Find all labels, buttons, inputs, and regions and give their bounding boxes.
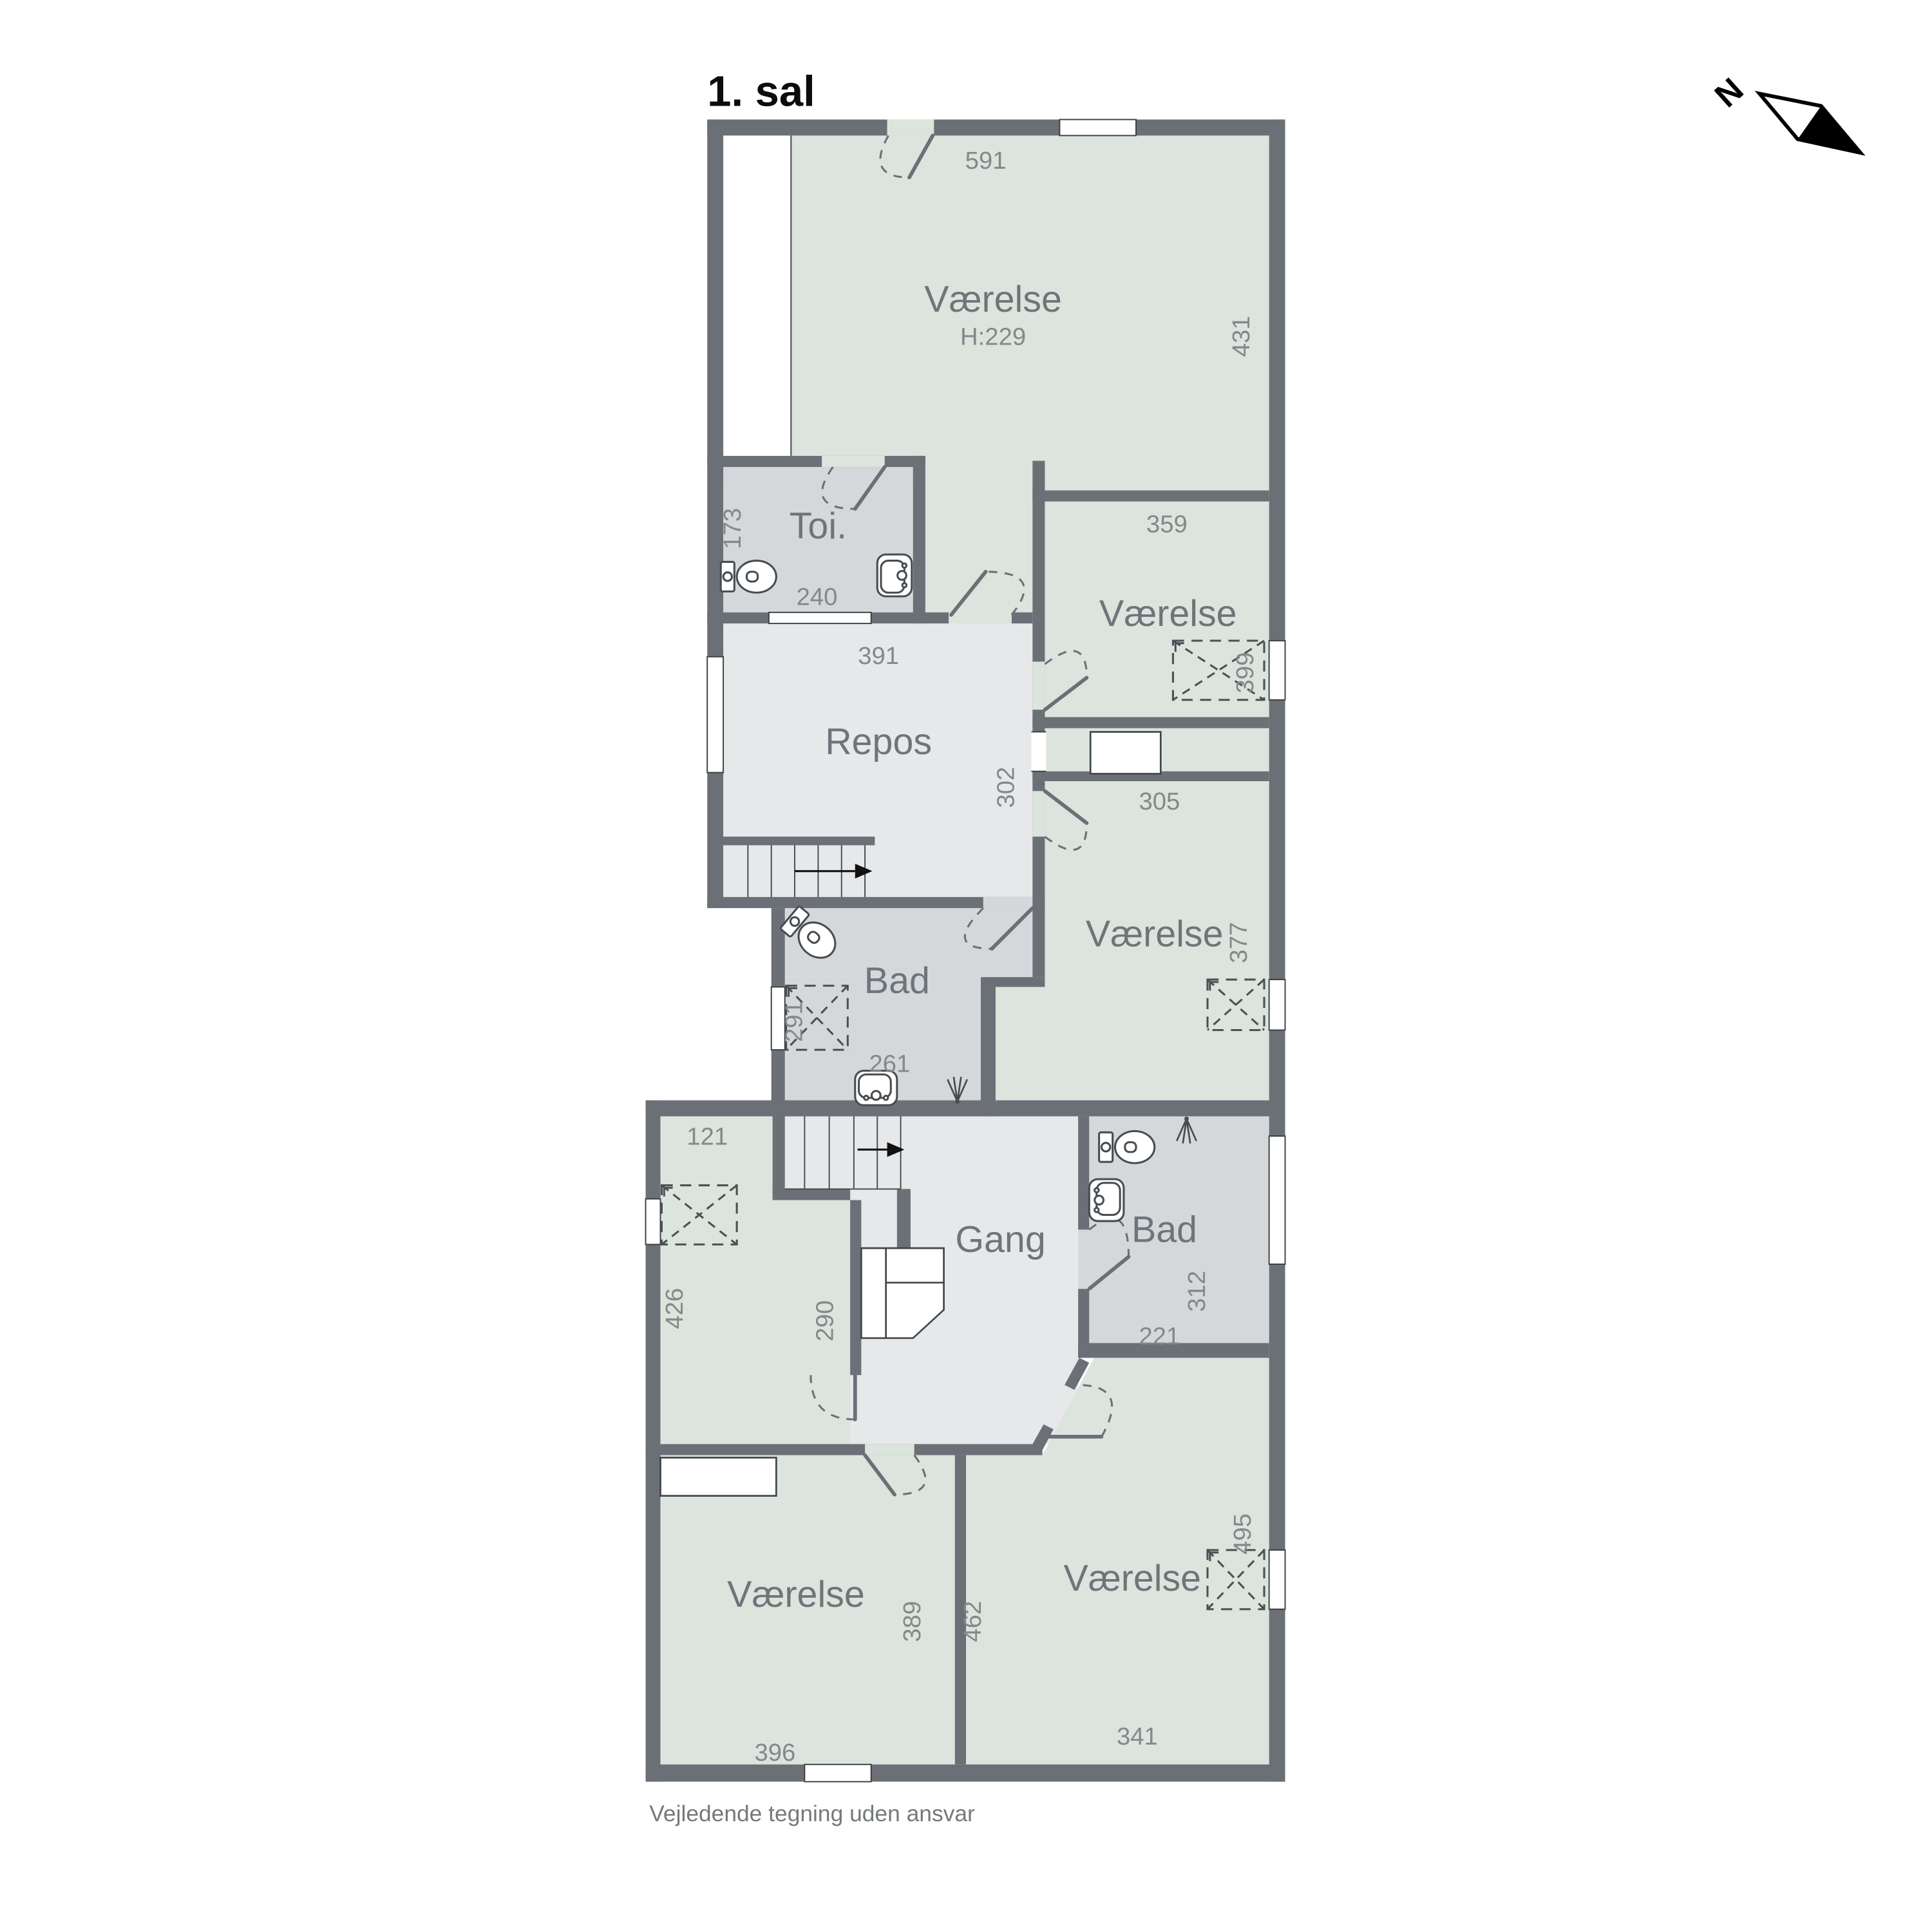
wall-bad-upper-jog: [981, 977, 1045, 987]
window-w-left: [646, 1199, 661, 1245]
wall-stair-stub: [897, 1189, 911, 1248]
floor-plan-svg: N 1. sal Vejledende tegning uden ansvar …: [0, 0, 1932, 1932]
label-bad-lower: Bad: [1132, 1209, 1197, 1251]
closet-vestibule: [1090, 732, 1160, 773]
label-gang: Gang: [955, 1219, 1045, 1260]
dim-431: 431: [1227, 316, 1255, 357]
label-toi: Toi.: [790, 506, 847, 547]
compass-north-label: N: [1707, 70, 1750, 114]
gap-sw: [865, 1444, 914, 1455]
wall-stair-top-bar: [719, 837, 875, 845]
dim-173: 173: [719, 508, 746, 549]
window-repos-left: [707, 657, 723, 773]
wall-ne-top: [1032, 490, 1269, 501]
dim-302: 302: [992, 767, 1020, 808]
gap-entry-top: [887, 120, 934, 136]
label-repos: Repos: [825, 721, 932, 762]
dim-591: 591: [965, 147, 1007, 175]
sink-icon-bad-lower: [1089, 1179, 1124, 1221]
wall-badl-divider-a: [1078, 1116, 1089, 1229]
gap-passage: [949, 612, 1012, 623]
dim-391: 391: [858, 642, 899, 670]
label-vaerelse-e: Værelse: [1086, 913, 1224, 954]
dim-377: 377: [1225, 922, 1253, 963]
wall-w-room-jog: [773, 1189, 851, 1200]
dim-341: 341: [1117, 1723, 1158, 1750]
dim-312: 312: [1183, 1271, 1211, 1312]
label-vaerelse-top: Værelse: [924, 279, 1062, 320]
void-strip: [723, 135, 791, 455]
window-sw-bottom: [804, 1765, 871, 1782]
room-vaerelse-w: [661, 1116, 773, 1444]
room-vaerelse-e-strip: [996, 987, 1045, 1101]
label-vaerelse-sw: Værelse: [727, 1574, 865, 1615]
window-top: [1059, 120, 1136, 136]
wall-lower-top: [646, 1101, 1285, 1117]
dim-462: 462: [959, 1601, 987, 1642]
label-ceiling-height: H:229: [960, 323, 1026, 351]
gap-e: [1032, 791, 1045, 837]
dim-290: 290: [811, 1300, 838, 1341]
window-toi-bottom: [769, 612, 871, 623]
closet-sw: [661, 1457, 777, 1495]
floor-plan-page: N 1. sal Vejledende tegning uden ansvar …: [0, 0, 1932, 1932]
compass: N: [1707, 70, 1861, 153]
window-bad-lower-right: [1269, 1136, 1285, 1264]
gap-bad-upper: [983, 897, 1033, 908]
dim-121: 121: [687, 1122, 728, 1150]
gap-ne: [1032, 661, 1045, 710]
label-vaerelse-ne: Værelse: [1099, 593, 1237, 634]
sink-icon-toi: [877, 554, 912, 596]
dim-389: 389: [898, 1601, 926, 1642]
wall-repos-top-b: [1012, 612, 1033, 623]
dim-240: 240: [797, 583, 838, 611]
toilet-icon-bad-lower: [1099, 1131, 1155, 1163]
wall-w-room-b: [850, 1200, 861, 1376]
dim-359: 359: [1146, 511, 1188, 538]
dim-305: 305: [1139, 788, 1180, 815]
wall-bigroom-bottom: [707, 456, 925, 467]
footer-disclaimer: Vejledende tegning uden ansvar: [649, 1801, 975, 1826]
page-title: 1. sal: [707, 68, 815, 116]
wall-gang-bottom: [646, 1444, 1043, 1455]
dim-221: 221: [1139, 1322, 1180, 1350]
gap-toi: [822, 456, 885, 467]
wall-bad-upper-right: [981, 987, 996, 1117]
wall-top: [707, 120, 1285, 136]
dim-399: 399: [1231, 652, 1259, 694]
label-vaerelse-se: Værelse: [1063, 1558, 1201, 1599]
wall-toi-right: [913, 456, 925, 623]
wall-w-room-a: [773, 1115, 785, 1194]
dim-495: 495: [1229, 1513, 1256, 1555]
window-se-right: [1269, 1550, 1285, 1609]
label-bad-upper: Bad: [864, 960, 930, 1001]
wall-ne-bottom: [1032, 717, 1269, 728]
dim-396: 396: [755, 1739, 796, 1766]
window-e-right: [1269, 980, 1285, 1030]
toilet-icon-toi: [721, 561, 776, 593]
gap-bad-lower: [1078, 1229, 1089, 1289]
wall-right: [1269, 120, 1285, 1782]
passage: [925, 456, 1032, 623]
opening-repos-vestibule: [1031, 732, 1046, 771]
window-ne-right: [1269, 641, 1285, 700]
dim-291: 291: [781, 1001, 808, 1042]
dim-261: 261: [869, 1050, 910, 1078]
dim-426: 426: [661, 1288, 688, 1329]
wall-bottom: [646, 1765, 1285, 1782]
